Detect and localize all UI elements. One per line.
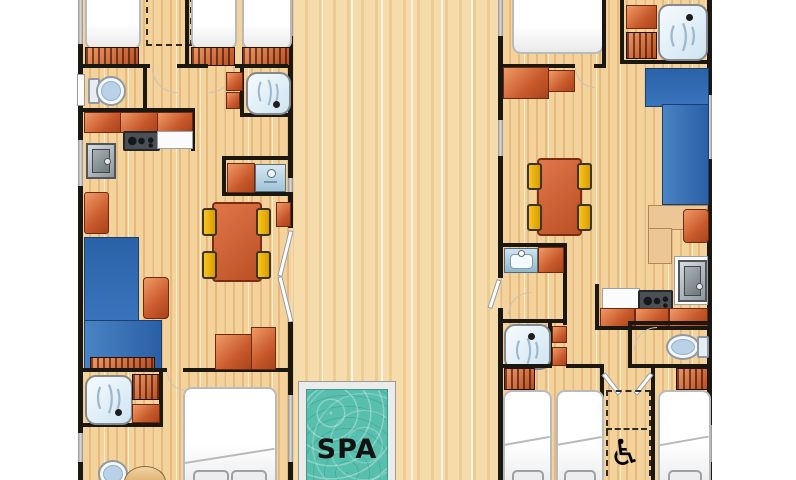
dining-chair bbox=[527, 163, 542, 190]
spa-label: SPA bbox=[307, 434, 387, 465]
sofa bbox=[84, 237, 139, 323]
bath-shelf bbox=[226, 72, 243, 91]
dining-chair bbox=[577, 204, 592, 231]
kitchen-sink-icon bbox=[86, 143, 116, 179]
wall bbox=[177, 64, 208, 68]
double-bed bbox=[512, 0, 604, 54]
window bbox=[498, 0, 503, 36]
bedside-cabinet bbox=[503, 67, 549, 99]
wall bbox=[566, 364, 604, 368]
wall bbox=[594, 64, 606, 68]
wall bbox=[503, 319, 567, 323]
pillow bbox=[512, 470, 544, 480]
bath-shelf bbox=[132, 374, 160, 400]
kitchen-cabinet bbox=[120, 112, 158, 133]
toilet-icon bbox=[666, 334, 700, 360]
bedside-cabinet bbox=[548, 70, 575, 92]
toilet-tank bbox=[697, 336, 709, 358]
dining-chair bbox=[527, 204, 542, 231]
sofa bbox=[645, 68, 709, 107]
wall bbox=[620, 0, 624, 64]
wall bbox=[83, 368, 167, 372]
dining-chair bbox=[202, 251, 217, 279]
wall bbox=[143, 68, 147, 112]
kitchen-counter bbox=[602, 288, 640, 310]
wall bbox=[78, 186, 83, 433]
single-bed bbox=[556, 390, 604, 480]
bath-cabinet bbox=[538, 247, 564, 273]
dining-chair bbox=[202, 208, 217, 236]
exterior-door bbox=[77, 74, 85, 106]
wall bbox=[78, 44, 83, 74]
pillow bbox=[193, 470, 229, 480]
kitchen-cabinet bbox=[84, 112, 121, 133]
single-bed bbox=[242, 0, 292, 50]
closet-cabinet bbox=[227, 163, 255, 193]
window bbox=[498, 120, 503, 156]
spa-pool-frame: SPA bbox=[298, 381, 396, 480]
armchair bbox=[683, 209, 709, 243]
kitchen-cabinet bbox=[669, 308, 708, 328]
bath-cabinet bbox=[132, 404, 160, 423]
wall bbox=[222, 156, 288, 160]
kitchen-sink-icon bbox=[678, 260, 707, 302]
window bbox=[78, 140, 83, 186]
dining-chair bbox=[577, 163, 592, 190]
toilet-icon bbox=[96, 76, 126, 106]
wall bbox=[185, 0, 189, 68]
pillow bbox=[564, 470, 596, 480]
wardrobe bbox=[215, 334, 253, 370]
bath-shelf bbox=[226, 92, 240, 109]
floorplan-canvas: SPA bbox=[0, 0, 796, 480]
single-bed bbox=[658, 390, 711, 480]
spa-pool-water: SPA bbox=[306, 389, 388, 480]
wall bbox=[628, 321, 712, 325]
window bbox=[288, 178, 293, 192]
window bbox=[288, 395, 293, 462]
wall bbox=[602, 0, 606, 64]
bed-head-shelf bbox=[676, 368, 708, 390]
pillow bbox=[231, 470, 267, 480]
bath-shelf bbox=[626, 5, 657, 29]
window bbox=[78, 433, 83, 462]
single-bed bbox=[85, 0, 141, 50]
dining-chair bbox=[256, 208, 271, 236]
dining-chair bbox=[256, 251, 271, 279]
dining-table bbox=[212, 202, 262, 282]
kitchen-bar bbox=[648, 228, 672, 264]
accessible-zone-divider bbox=[606, 428, 647, 430]
wall bbox=[222, 156, 226, 196]
wall bbox=[498, 156, 503, 278]
dining-table bbox=[537, 158, 582, 236]
washbasin-counter bbox=[504, 248, 538, 273]
stove-icon bbox=[123, 131, 160, 151]
wall bbox=[288, 462, 293, 480]
kitchen-counter bbox=[157, 131, 193, 149]
wall bbox=[595, 284, 599, 330]
coffee-table bbox=[143, 277, 169, 319]
bath-shelf bbox=[626, 32, 657, 59]
wall bbox=[651, 368, 655, 480]
bath-shelf bbox=[552, 326, 567, 343]
bed-head-shelf bbox=[504, 368, 535, 390]
kitchen-cabinet bbox=[157, 112, 193, 133]
single-bed bbox=[503, 390, 552, 480]
kitchen-cabinet bbox=[635, 308, 669, 328]
sofa bbox=[662, 104, 709, 205]
armchair bbox=[84, 192, 109, 234]
shower-tray bbox=[85, 375, 133, 425]
shower-tray bbox=[658, 4, 708, 61]
single-bed bbox=[191, 0, 237, 50]
wall bbox=[288, 322, 293, 395]
wheelchair-accessible-icon: ♿ bbox=[609, 436, 641, 472]
wall bbox=[78, 462, 83, 480]
side-table bbox=[276, 202, 291, 227]
wall bbox=[628, 321, 632, 368]
pillow bbox=[668, 470, 702, 480]
bath-shelf bbox=[552, 347, 567, 366]
shower-tray bbox=[246, 72, 291, 115]
wardrobe bbox=[251, 327, 276, 370]
wall bbox=[83, 64, 150, 68]
double-bed bbox=[183, 387, 277, 480]
water-heater-icon bbox=[255, 164, 286, 192]
window bbox=[78, 0, 83, 44]
